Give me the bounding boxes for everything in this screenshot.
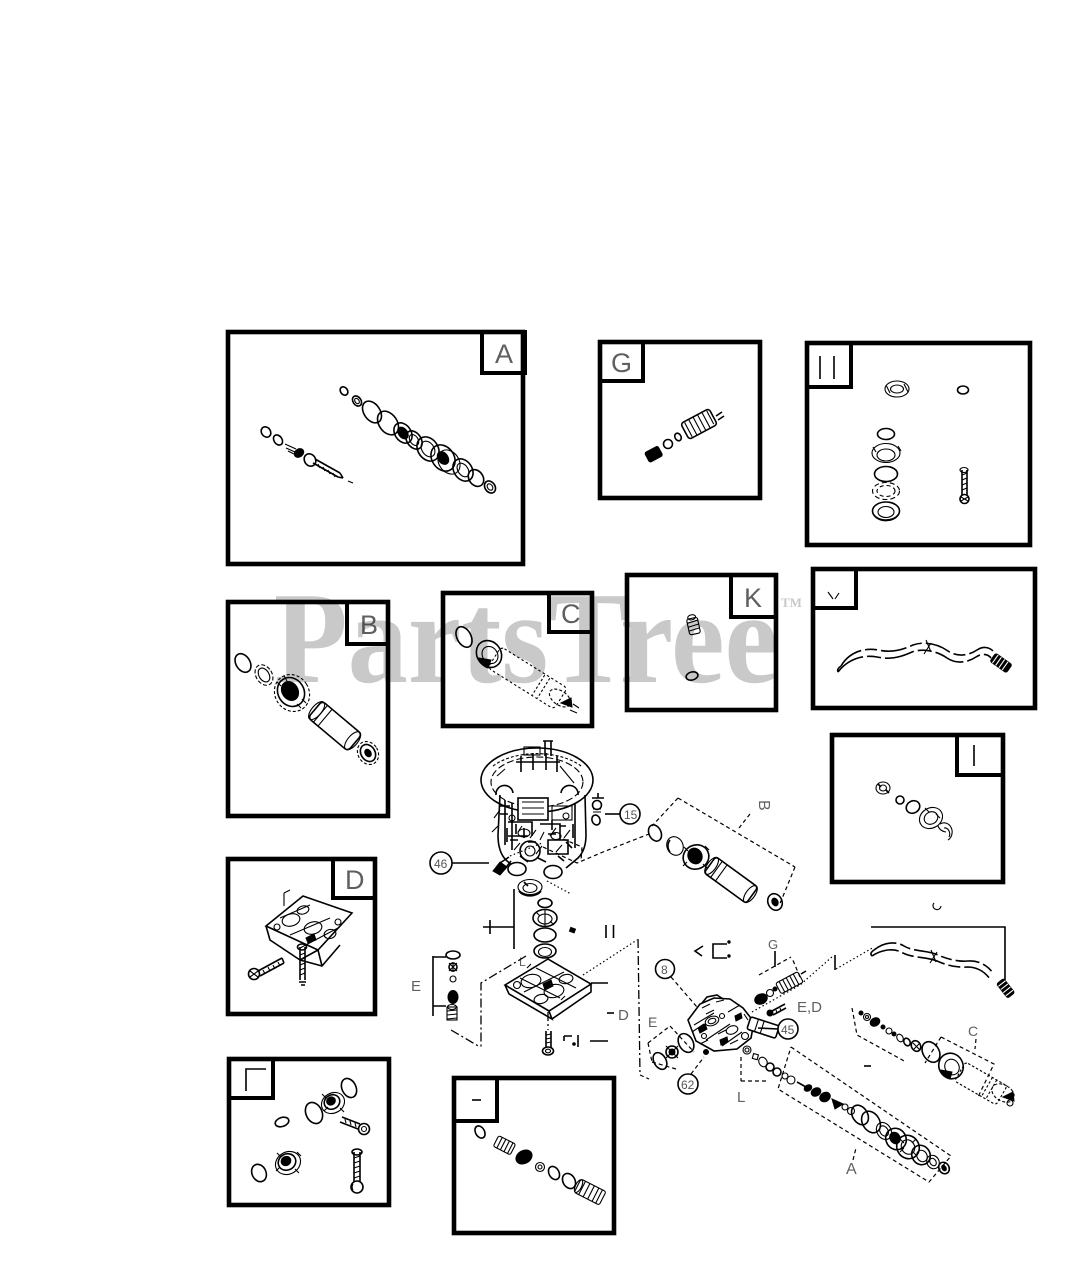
svg-text:46: 46 — [434, 857, 448, 871]
svg-text:45: 45 — [781, 1023, 795, 1037]
svg-text:8: 8 — [661, 963, 668, 977]
svg-text:A: A — [846, 1161, 857, 1178]
svg-text:C: C — [968, 1023, 978, 1039]
svg-text:C: C — [561, 599, 581, 629]
svg-text:A: A — [495, 339, 513, 369]
svg-text:15: 15 — [624, 808, 638, 822]
svg-text:G: G — [611, 348, 632, 378]
svg-text:B: B — [360, 610, 378, 640]
svg-text:62: 62 — [681, 1078, 695, 1092]
svg-text:E: E — [648, 1014, 657, 1030]
svg-text:D: D — [345, 865, 365, 895]
svg-text:E: E — [411, 978, 421, 995]
svg-text:TM: TM — [781, 595, 802, 610]
svg-text:K: K — [744, 583, 762, 613]
svg-text:E,D: E,D — [797, 999, 822, 1016]
svg-text:D: D — [618, 1007, 629, 1024]
svg-text:L: L — [519, 955, 526, 969]
svg-text:L: L — [737, 1089, 745, 1106]
svg-text:B: B — [755, 800, 772, 811]
svg-text:PartsTree: PartsTree — [274, 566, 778, 711]
svg-text:G: G — [768, 937, 778, 952]
